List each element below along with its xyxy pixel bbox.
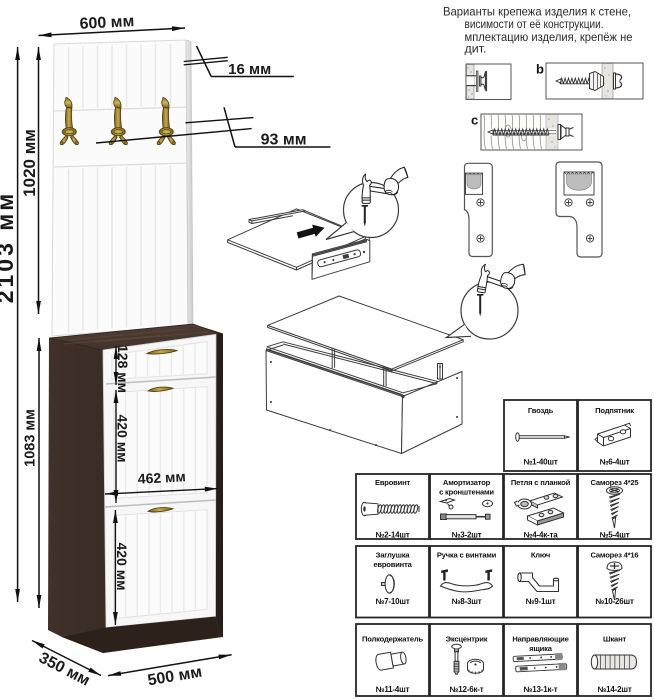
svg-text:Петля с планкой: Петля с планкой [511,478,571,487]
svg-text:Саморез 4*16: Саморез 4*16 [591,551,639,560]
svg-text:Ручка с винтами: Ручка с винтами [437,551,497,560]
svg-text:№2-14шт: №2-14шт [375,530,409,539]
svg-text:Направляющие: Направляющие [512,635,568,644]
svg-text:93 мм: 93 мм [261,132,307,149]
svg-text:с кронштенами: с кронштенами [439,488,494,497]
svg-text:№11-4шт: №11-4шт [376,685,410,694]
svg-text:16 мм: 16 мм [228,61,271,78]
svg-text:Эксцентрик: Эксцентрик [446,635,488,644]
svg-text:№13-1к-т: №13-1к-т [524,685,558,694]
svg-text:Полкодержатель: Полкодержатель [362,635,423,644]
svg-text:№12-6к-т: №12-6к-т [450,685,484,694]
svg-text:Амортизатор: Амортизатор [443,478,491,487]
svg-text:1083 мм: 1083 мм [23,409,39,467]
svg-text:№7-10шт: №7-10шт [375,597,409,606]
svg-text:дит.: дит. [465,42,487,56]
svg-text:420 мм: 420 мм [115,415,131,463]
svg-text:№1-40шт: №1-40шт [523,457,557,466]
svg-text:мплектацию изделия, крепёж не: мплектацию изделия, крепёж не [465,30,633,44]
svg-text:Заглушка: Заглушка [376,551,411,560]
svg-text:128 мм: 128 мм [115,345,131,393]
svg-text:b: b [536,62,544,77]
svg-text:2103 мм: 2103 мм [0,191,18,304]
svg-text:№5-4шт: №5-4шт [600,530,630,539]
svg-text:№6-4шт: №6-4шт [600,457,630,466]
svg-text:Ключ: Ключ [531,551,550,560]
svg-text:c: c [471,113,478,128]
svg-text:600 мм: 600 мм [79,13,135,33]
svg-text:Евровинт: Евровинт [375,478,411,487]
svg-text:ящика: ящика [529,644,553,653]
svg-text:Подпятник: Подпятник [595,406,634,415]
svg-text:462 мм: 462 мм [137,468,186,486]
svg-text:Шкант: Шкант [603,635,626,644]
svg-text:№4-4к-та: №4-4к-та [524,530,559,539]
svg-text:№9-1шт: №9-1шт [526,597,556,606]
svg-text:№8-3шт: №8-3шт [452,597,482,606]
svg-text:евровинта: евровинта [373,560,412,569]
svg-text:1020 мм: 1020 мм [20,129,39,197]
svg-text:Саморез 4*25: Саморез 4*25 [591,478,640,487]
svg-text:420 мм: 420 мм [114,543,130,591]
svg-text:№3-2шт: №3-2шт [452,530,482,539]
svg-text:Гвоздь: Гвоздь [528,406,554,415]
svg-text:№14-2шт: №14-2шт [597,685,631,694]
